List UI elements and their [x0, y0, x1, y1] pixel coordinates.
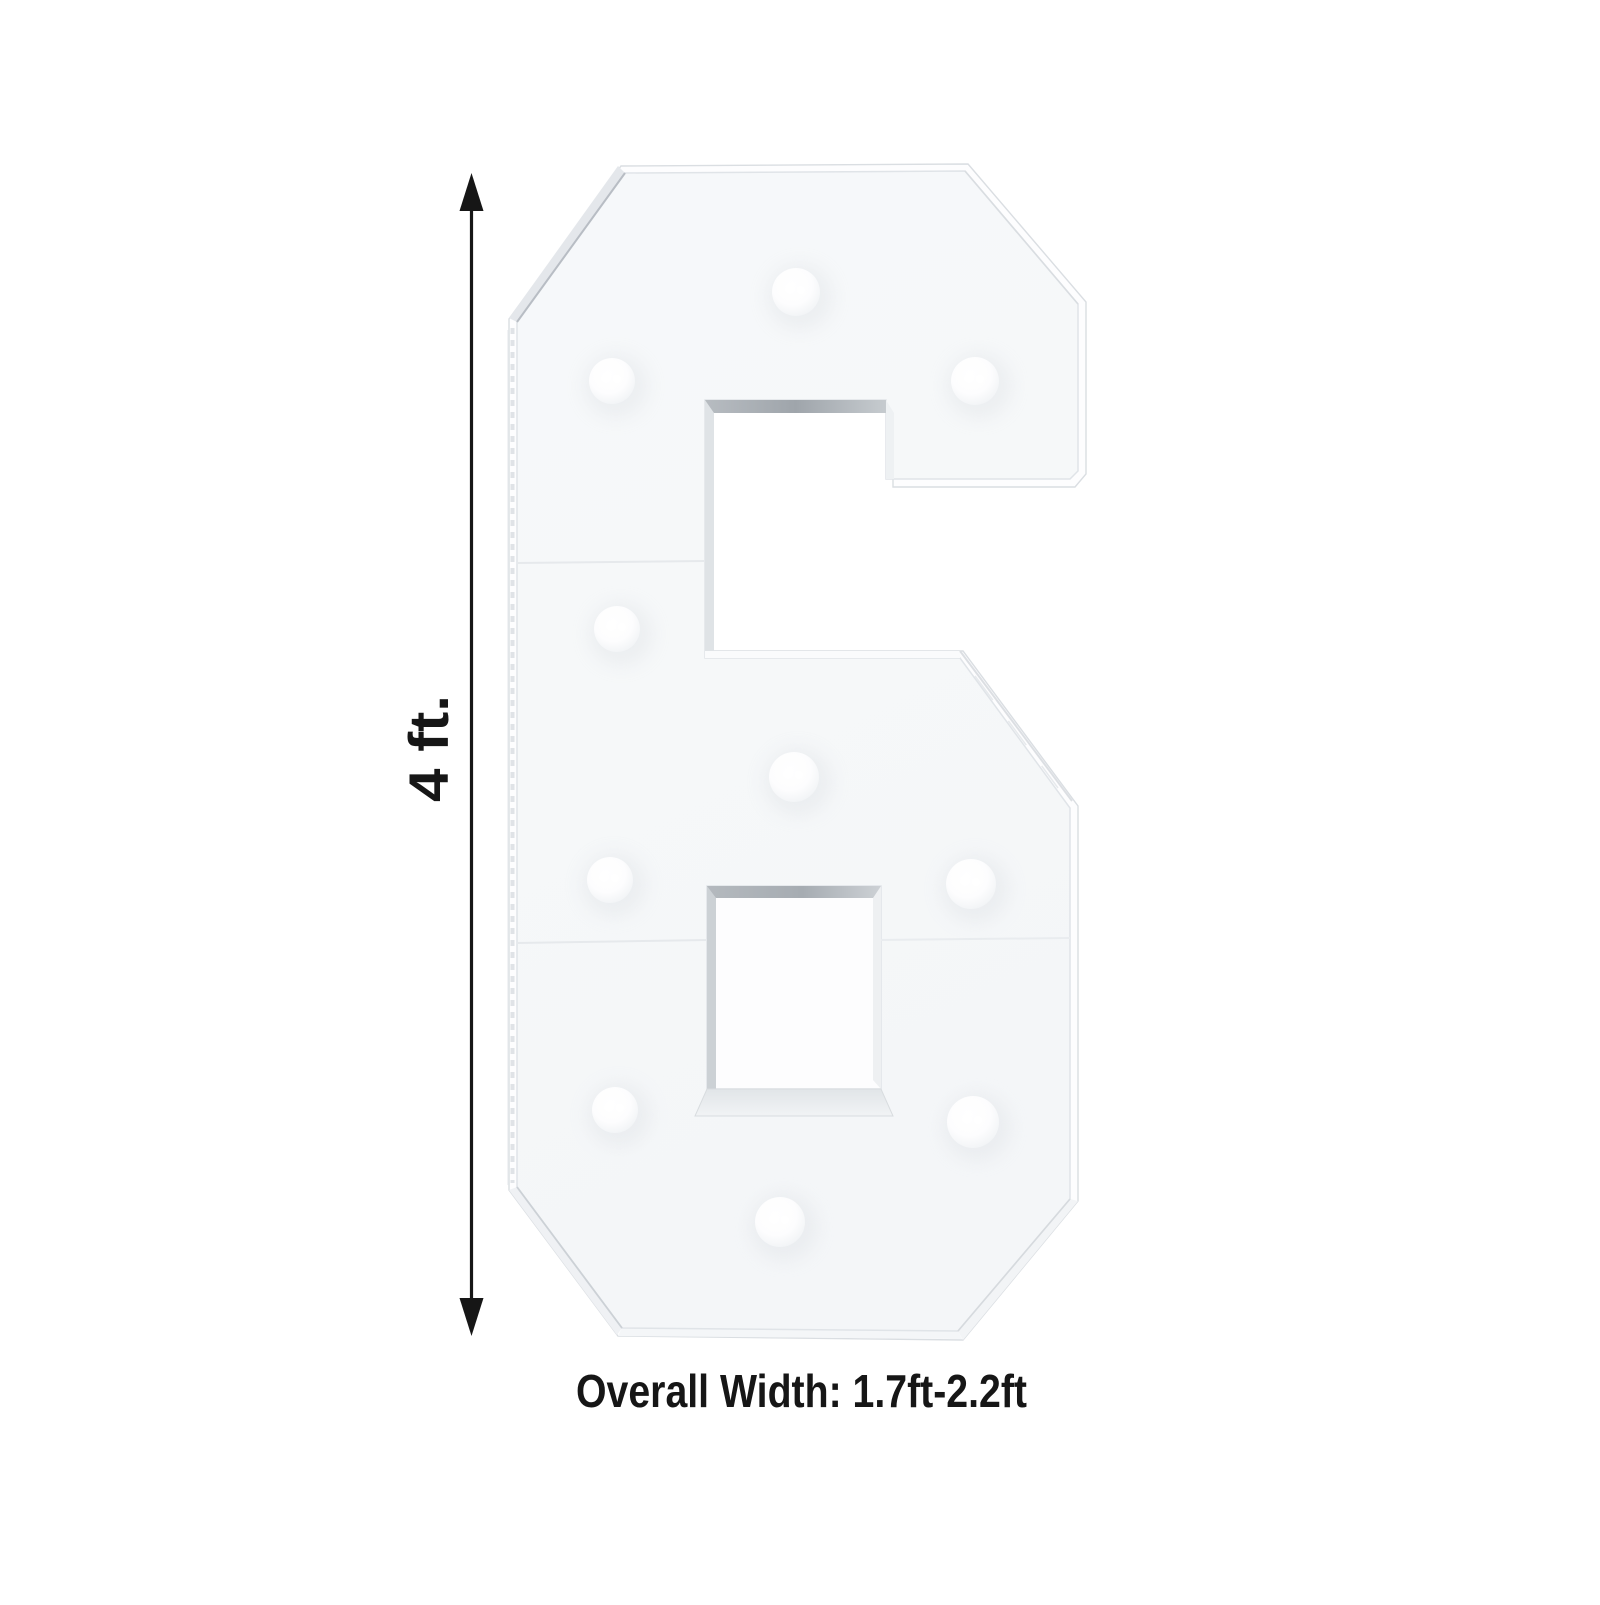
svg-text:4 ft.: 4 ft. [397, 695, 460, 802]
svg-text:Overall Width: 1.7ft-2.2ft: Overall Width: 1.7ft-2.2ft [576, 1365, 1027, 1417]
